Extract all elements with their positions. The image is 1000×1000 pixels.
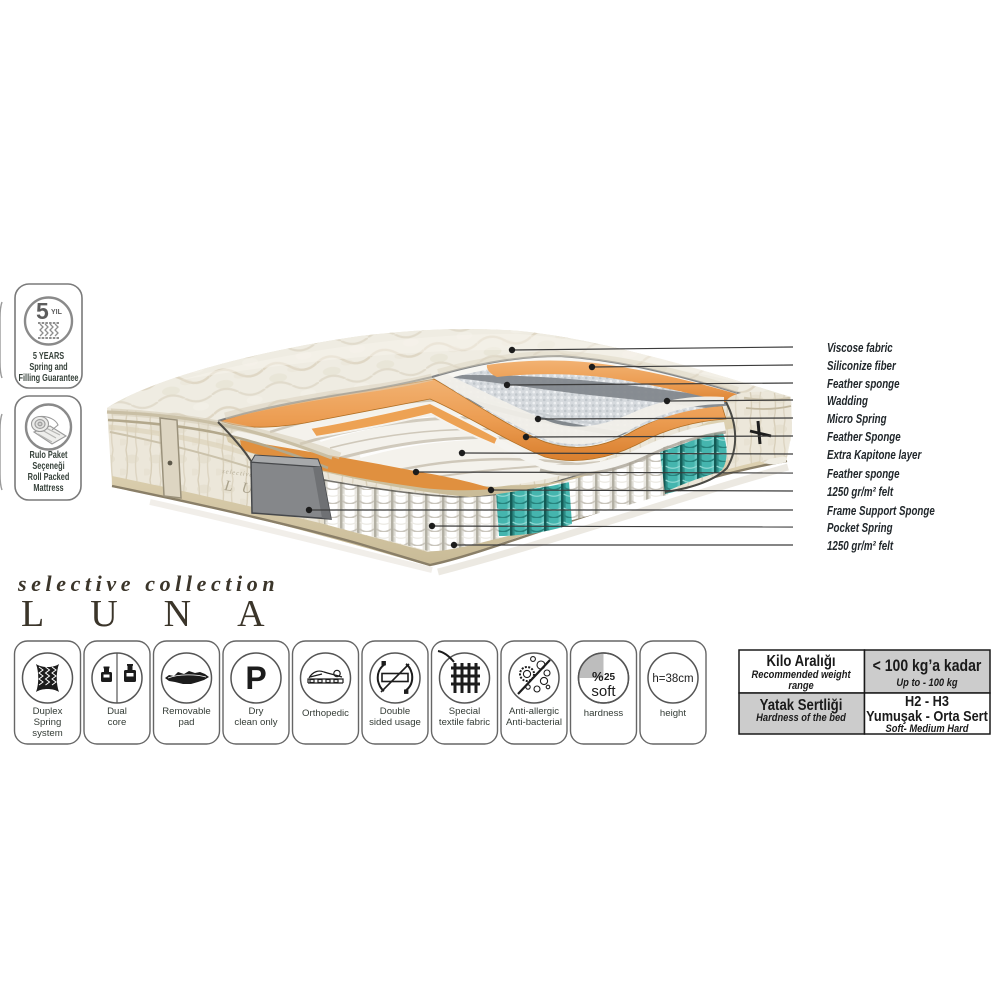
svg-text:Double: Double xyxy=(380,706,410,717)
svg-text:Spring and: Spring and xyxy=(29,361,67,372)
svg-text:height: height xyxy=(660,708,686,719)
svg-text:core: core xyxy=(108,717,127,728)
svg-text:Hardness of the bed: Hardness of the bed xyxy=(756,712,846,724)
svg-text:Roll Packed: Roll Packed xyxy=(28,471,70,482)
svg-text:Siliconize fiber: Siliconize fiber xyxy=(827,360,896,374)
svg-text:clean only: clean only xyxy=(234,717,277,728)
svg-text:hardness: hardness xyxy=(584,708,624,719)
svg-text:h=38cm: h=38cm xyxy=(652,673,693,685)
svg-text:%: % xyxy=(592,669,604,684)
svg-text:< 100 kg’a kadar: < 100 kg’a kadar xyxy=(873,657,982,675)
svg-text:soft: soft xyxy=(591,683,616,700)
svg-text:system: system xyxy=(32,728,62,739)
svg-text:Feather sponge: Feather sponge xyxy=(827,468,900,482)
svg-text:Anti-allergic: Anti-allergic xyxy=(509,706,559,717)
svg-text:1250 gr/m² felt: 1250 gr/m² felt xyxy=(827,540,894,554)
svg-text:Feather sponge: Feather sponge xyxy=(827,378,900,392)
svg-text:Viscose fabric: Viscose fabric xyxy=(827,342,893,356)
svg-text:1250 gr/m² felt: 1250 gr/m² felt xyxy=(827,486,894,500)
svg-text:Extra Kapitone layer: Extra Kapitone layer xyxy=(827,449,922,463)
svg-text:Anti-bacterial: Anti-bacterial xyxy=(506,717,562,728)
svg-text:textile fabric: textile fabric xyxy=(439,717,490,728)
svg-text:Wadding: Wadding xyxy=(827,395,868,409)
svg-text:Spring: Spring xyxy=(34,717,62,728)
svg-text:sided usage: sided usage xyxy=(369,717,421,728)
svg-text:LUNA: LUNA xyxy=(21,593,311,635)
svg-text:Rulo Paket: Rulo Paket xyxy=(30,449,68,460)
svg-text:Micro Spring: Micro Spring xyxy=(827,413,887,427)
svg-text:Yumuşak - Orta Sert: Yumuşak - Orta Sert xyxy=(866,707,988,724)
svg-text:Frame Support Sponge: Frame Support Sponge xyxy=(827,505,935,519)
svg-text:pad: pad xyxy=(178,717,194,728)
svg-text:P: P xyxy=(245,660,266,696)
svg-text:Dry: Dry xyxy=(249,706,264,717)
svg-text:Filling Guarantee: Filling Guarantee xyxy=(18,372,78,383)
svg-text:5 YEARS: 5 YEARS xyxy=(33,350,64,361)
svg-text:YIL: YIL xyxy=(51,309,63,316)
svg-text:Soft- Medium Hard: Soft- Medium Hard xyxy=(886,723,970,735)
svg-text:Pocket Spring: Pocket Spring xyxy=(827,522,893,536)
svg-text:Up to - 100 kg: Up to - 100 kg xyxy=(896,677,958,689)
svg-text:Seçeneği: Seçeneği xyxy=(32,460,64,471)
svg-text:Duplex: Duplex xyxy=(33,706,63,717)
svg-text:Mattress: Mattress xyxy=(33,482,63,493)
svg-text:Special: Special xyxy=(449,706,480,717)
svg-text:25: 25 xyxy=(604,672,616,683)
svg-text:Feather Sponge: Feather Sponge xyxy=(827,431,901,445)
svg-text:Kilo Aralığı: Kilo Aralığı xyxy=(767,653,836,670)
svg-text:Orthopedic: Orthopedic xyxy=(302,708,349,719)
svg-text:5: 5 xyxy=(36,298,49,324)
svg-text:Dual: Dual xyxy=(107,706,127,717)
svg-text:range: range xyxy=(788,680,814,692)
svg-text:Removable: Removable xyxy=(162,706,211,717)
